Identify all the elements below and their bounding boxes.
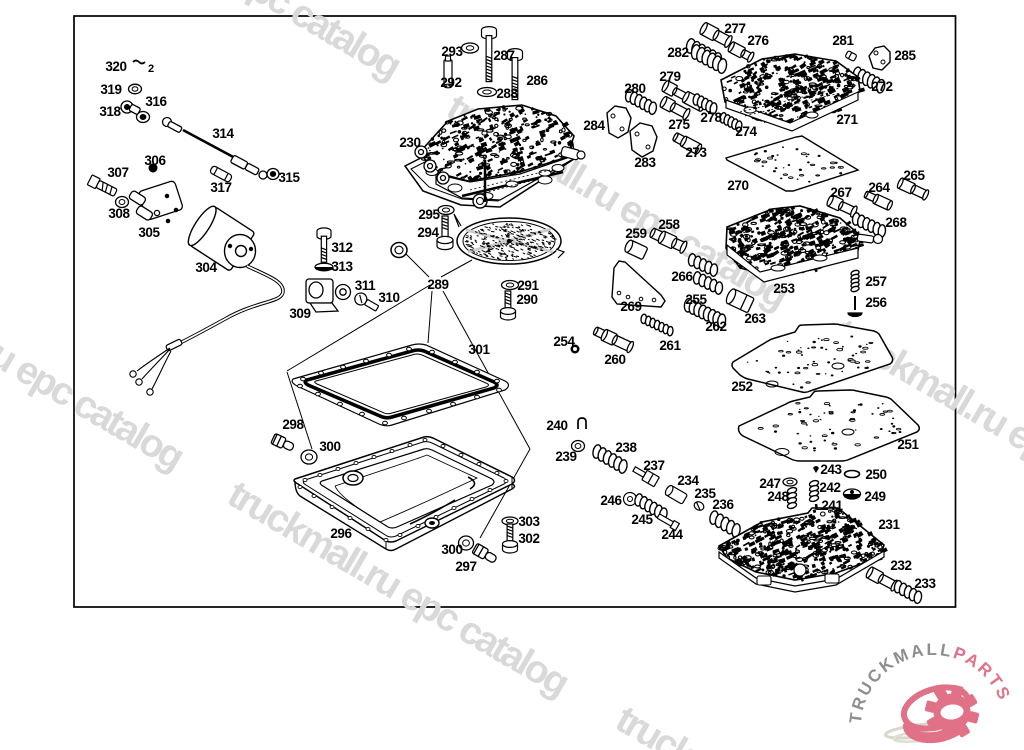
- svg-text:246: 246: [600, 493, 622, 508]
- svg-text:318: 318: [99, 104, 121, 119]
- svg-text:232: 232: [890, 558, 911, 573]
- svg-text:310: 310: [378, 290, 399, 305]
- svg-text:296: 296: [330, 526, 352, 541]
- svg-text:287: 287: [493, 48, 514, 63]
- svg-text:281: 281: [832, 33, 854, 48]
- svg-text:308: 308: [108, 206, 130, 221]
- svg-text:230: 230: [399, 135, 420, 150]
- svg-text:233: 233: [914, 576, 936, 591]
- svg-text:307: 307: [107, 165, 128, 180]
- svg-text:312: 312: [331, 240, 352, 255]
- svg-text:292: 292: [440, 75, 461, 90]
- svg-text:319: 319: [100, 82, 121, 97]
- svg-text:295: 295: [418, 207, 440, 222]
- svg-text:240: 240: [546, 418, 567, 433]
- svg-text:256: 256: [865, 295, 887, 310]
- svg-text:261: 261: [659, 338, 681, 353]
- svg-text:286: 286: [526, 73, 548, 88]
- svg-text:305: 305: [138, 225, 160, 240]
- svg-text:242: 242: [819, 480, 840, 495]
- svg-text:259: 259: [625, 226, 646, 241]
- svg-text:284: 284: [583, 118, 605, 133]
- svg-text:280: 280: [624, 81, 645, 96]
- svg-text:244: 244: [661, 527, 683, 542]
- svg-text:249: 249: [864, 489, 885, 504]
- svg-text:265: 265: [903, 168, 925, 183]
- svg-text:302: 302: [518, 531, 539, 546]
- svg-text:264: 264: [868, 180, 890, 195]
- svg-text:297: 297: [455, 559, 476, 574]
- svg-text:236: 236: [712, 497, 734, 512]
- svg-text:301: 301: [468, 342, 490, 357]
- svg-text:293: 293: [441, 44, 463, 59]
- svg-text:306: 306: [144, 153, 166, 168]
- svg-text:298: 298: [282, 417, 304, 432]
- svg-text:260: 260: [604, 352, 625, 367]
- svg-text:262: 262: [705, 319, 726, 334]
- svg-text:277: 277: [724, 21, 745, 36]
- svg-text:276: 276: [747, 33, 769, 48]
- svg-text:238: 238: [615, 440, 637, 455]
- svg-text:237: 237: [643, 458, 664, 473]
- svg-text:300: 300: [319, 439, 340, 454]
- svg-text:269: 269: [620, 299, 641, 314]
- svg-text:279: 279: [659, 69, 680, 84]
- svg-text:2: 2: [148, 63, 154, 75]
- svg-text:300: 300: [441, 542, 462, 557]
- svg-text:239: 239: [555, 449, 576, 464]
- svg-text:289: 289: [427, 277, 448, 292]
- svg-text:258: 258: [658, 217, 680, 232]
- svg-text:282: 282: [667, 45, 688, 60]
- svg-text:253: 253: [773, 281, 795, 296]
- svg-text:266: 266: [671, 269, 693, 284]
- svg-text:254: 254: [553, 334, 575, 349]
- svg-text:267: 267: [830, 185, 851, 200]
- svg-text:288: 288: [496, 86, 518, 101]
- svg-text:271: 271: [836, 112, 858, 127]
- svg-text:316: 316: [145, 94, 167, 109]
- svg-text:309: 309: [289, 306, 310, 321]
- svg-text:294: 294: [417, 225, 439, 240]
- svg-text:311: 311: [355, 278, 376, 293]
- svg-text:257: 257: [865, 274, 886, 289]
- svg-text:314: 314: [212, 126, 234, 141]
- svg-text:243: 243: [820, 462, 842, 477]
- svg-text:263: 263: [744, 311, 766, 326]
- svg-text:268: 268: [885, 215, 907, 230]
- svg-text:251: 251: [897, 437, 919, 452]
- svg-text:317: 317: [210, 180, 231, 195]
- svg-text:250: 250: [865, 467, 886, 482]
- svg-text:283: 283: [634, 155, 656, 170]
- svg-text:255: 255: [685, 292, 707, 307]
- svg-text:252: 252: [731, 379, 752, 394]
- svg-text:304: 304: [195, 260, 217, 275]
- svg-text:313: 313: [331, 259, 353, 274]
- svg-text:231: 231: [878, 517, 900, 532]
- svg-text:290: 290: [516, 292, 537, 307]
- svg-text:241: 241: [821, 498, 843, 513]
- svg-text:273: 273: [685, 145, 707, 160]
- svg-text:285: 285: [894, 48, 916, 63]
- svg-text:274: 274: [735, 124, 757, 139]
- svg-text:272: 272: [871, 79, 892, 94]
- svg-text:303: 303: [518, 514, 540, 529]
- svg-text:315: 315: [278, 170, 300, 185]
- svg-text:278: 278: [700, 110, 722, 125]
- svg-text:320: 320: [105, 59, 126, 74]
- svg-text:245: 245: [631, 512, 653, 527]
- svg-text:291: 291: [517, 278, 539, 293]
- svg-text:275: 275: [668, 117, 690, 132]
- svg-text:248: 248: [767, 489, 789, 504]
- svg-text:270: 270: [727, 178, 748, 193]
